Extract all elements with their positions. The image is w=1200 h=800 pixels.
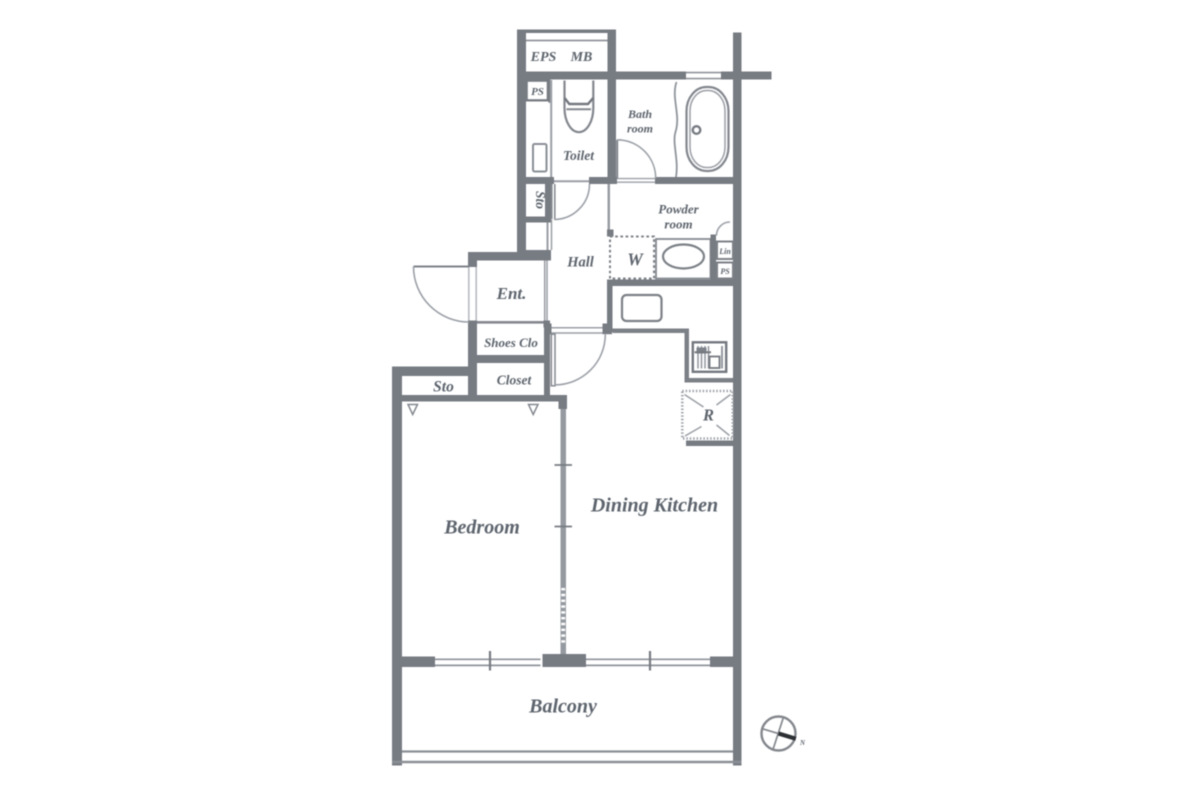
svg-text:EPS: EPS bbox=[530, 50, 557, 65]
svg-text:Lin: Lin bbox=[718, 247, 731, 256]
svg-text:Sto: Sto bbox=[433, 379, 454, 396]
svg-text:Toilet: Toilet bbox=[563, 148, 595, 163]
svg-text:Hall: Hall bbox=[566, 254, 594, 270]
svg-text:MB: MB bbox=[570, 50, 593, 65]
svg-text:PS: PS bbox=[531, 86, 544, 98]
svg-text:PS: PS bbox=[720, 267, 730, 276]
svg-text:room: room bbox=[664, 216, 692, 231]
svg-text:Shoes Clo: Shoes Clo bbox=[484, 335, 538, 350]
svg-text:Bath: Bath bbox=[627, 107, 652, 121]
svg-text:Dining Kitchen: Dining Kitchen bbox=[590, 495, 718, 517]
svg-text:room: room bbox=[627, 122, 653, 136]
svg-text:Ent.: Ent. bbox=[496, 284, 527, 303]
svg-text:N: N bbox=[799, 739, 806, 747]
svg-text:W: W bbox=[627, 250, 644, 270]
svg-text:Powder: Powder bbox=[658, 202, 699, 217]
svg-text:Bedroom: Bedroom bbox=[443, 517, 520, 539]
svg-text:R: R bbox=[702, 406, 714, 425]
svg-text:Closet: Closet bbox=[497, 373, 533, 388]
svg-text:Balcony: Balcony bbox=[528, 696, 597, 718]
